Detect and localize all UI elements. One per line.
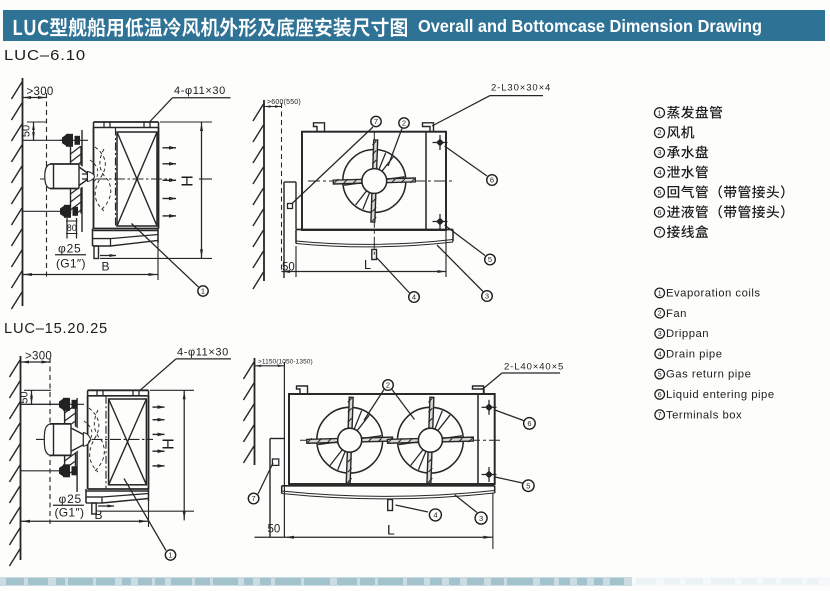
- svg-text:>1150(1050-1350): >1150(1050-1350): [258, 359, 313, 366]
- svg-text:6: 6: [658, 208, 662, 217]
- svg-text:Liquid entering pipe: Liquid entering pipe: [666, 389, 775, 401]
- svg-text:3: 3: [485, 292, 489, 301]
- svg-text:7: 7: [374, 117, 378, 126]
- svg-text:4-φ11×30: 4-φ11×30: [174, 85, 226, 97]
- svg-text:φ25: φ25: [58, 242, 82, 256]
- svg-text:1: 1: [658, 108, 662, 117]
- svg-text:6: 6: [527, 419, 531, 428]
- svg-text:1: 1: [658, 290, 662, 297]
- svg-text:H: H: [161, 438, 178, 450]
- svg-text:>600(550): >600(550): [267, 99, 301, 106]
- svg-text:Fan: Fan: [666, 308, 687, 320]
- svg-text:7: 7: [658, 228, 662, 237]
- svg-text:3: 3: [479, 514, 483, 523]
- svg-text:Drippan: Drippan: [666, 328, 709, 340]
- svg-text:5: 5: [488, 255, 492, 264]
- svg-text:B: B: [95, 508, 103, 522]
- svg-text:2-L40×40×5: 2-L40×40×5: [504, 362, 564, 373]
- svg-text:2: 2: [658, 128, 662, 137]
- svg-text:50: 50: [21, 125, 33, 137]
- svg-text:Overall and Bottomcase Dime: Overall and Bottomcase Dimension Drawing: [418, 16, 762, 36]
- svg-text:7: 7: [658, 412, 662, 419]
- svg-text:7: 7: [252, 494, 256, 503]
- svg-text:50: 50: [19, 391, 31, 403]
- svg-text:5: 5: [526, 481, 530, 490]
- svg-text:2: 2: [658, 311, 662, 318]
- svg-text:(G1″): (G1″): [55, 505, 85, 519]
- svg-text:Evaporation coils: Evaporation coils: [666, 288, 761, 300]
- svg-text:5: 5: [658, 188, 662, 197]
- svg-text:4: 4: [433, 511, 437, 520]
- svg-text:2: 2: [402, 119, 406, 128]
- svg-text:2: 2: [386, 381, 390, 390]
- svg-text:4: 4: [412, 293, 416, 302]
- svg-text:2-L30×30×4: 2-L30×30×4: [491, 83, 551, 94]
- svg-text:3: 3: [658, 331, 662, 338]
- svg-text:L: L: [387, 522, 395, 538]
- svg-text:(G1″): (G1″): [56, 257, 86, 271]
- svg-text:5: 5: [658, 372, 662, 379]
- svg-text:H: H: [180, 175, 197, 187]
- svg-text:L: L: [364, 258, 371, 272]
- svg-text:LUC–6.10: LUC–6.10: [4, 47, 86, 64]
- svg-text:>300: >300: [25, 351, 52, 363]
- svg-text:LUC–15.20.25: LUC–15.20.25: [4, 320, 108, 337]
- svg-text:3: 3: [658, 148, 662, 157]
- svg-text:1: 1: [201, 287, 205, 296]
- svg-text:6: 6: [658, 392, 662, 399]
- svg-text:80: 80: [67, 223, 77, 233]
- svg-text:1: 1: [168, 551, 172, 560]
- svg-text:4: 4: [658, 168, 662, 177]
- svg-text:Drain pipe: Drain pipe: [666, 348, 723, 360]
- svg-text:4-φ11×30: 4-φ11×30: [177, 347, 229, 359]
- svg-text:6: 6: [490, 176, 494, 185]
- svg-text:φ25: φ25: [59, 492, 83, 506]
- svg-text:Terminals box: Terminals box: [666, 409, 742, 421]
- svg-text:50: 50: [268, 524, 281, 536]
- svg-text:B: B: [102, 260, 110, 274]
- svg-text:Gas return pipe: Gas return pipe: [666, 369, 751, 381]
- svg-text:4: 4: [658, 351, 662, 358]
